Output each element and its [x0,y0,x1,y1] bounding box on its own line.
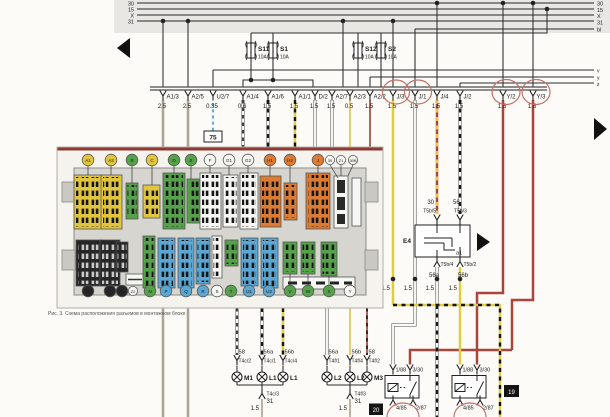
e4-pin-t5b2: T5b/2 [464,262,477,268]
connector-a2-3: A2/30.5 [345,91,367,111]
ground-gauge: 1.5 [251,406,260,412]
connector-y-2: Y/21.5 [498,91,516,111]
fuse-name: S11 [258,46,270,53]
connector-label: J/3 [397,95,406,101]
wire-gauge: 0.5 [345,104,354,110]
inset-label: G2 [245,158,252,163]
connector-label: J/4 [441,95,450,101]
inset-top-border [58,148,383,151]
wire-gauge: 1.5 [410,104,419,110]
fuse-rating: 10A [280,55,290,61]
lamp-icon [345,372,355,382]
inset-label: P [164,289,167,294]
inset-label: Z1 [339,158,344,163]
relay-1: 1/88 3/30 4/85 2/87 [385,365,427,417]
inset-label: W [306,289,311,294]
connector-label: A1/3 [167,95,180,101]
inset-label: H1 [267,158,273,163]
inset-label: E [189,158,192,163]
connector-label: J/1 [419,95,428,101]
ground-bus: 31 [267,399,274,405]
wire-gauge: 1.5 [388,104,397,110]
wire-gauge: 0.6 [238,104,247,110]
relay-terminal: 1/88 [396,368,407,374]
inset-connector-layout: A1 A2 B C D E F G1 G2 H1 H2 J 30 Z1 30B … [57,147,383,308]
inset-label: U2 [266,289,272,294]
ref-number: 20 [373,408,380,414]
wire-gauge: 0.35 [206,104,218,110]
fuse-icon [246,41,257,60]
e4-pin-t5b4: T5b/4 [441,262,454,268]
connector-j-3: J/31.5 [388,91,405,111]
terminal-75-label: 75 [209,135,217,142]
relay-terminal: 1/88 [463,368,474,374]
inset-blocks-top [74,173,361,229]
fuse-rating: 10A [258,55,268,61]
terminal-label: 56b [285,350,295,356]
e4-pin-t5b5: T5b/5 [423,209,436,215]
connector-label: A1/1 [299,95,312,101]
fuse-name: S12 [365,46,377,53]
lamp-name: L1 [269,375,277,382]
wire-y-3 [512,100,533,350]
inset-label: J [317,158,319,163]
fuse-name: S2 [388,46,396,53]
gauge: 1.5 [449,286,458,292]
connector-j-1: J/11.5 [410,91,427,111]
continuation-arrow-right-icon [594,118,607,140]
inset-label: A1 [85,158,91,163]
relay-terminal: 3/30 [480,368,491,374]
connector-label: A2/5 [192,95,205,101]
connector-label: A2/3 [354,95,367,101]
relay-terminal: 4/85 [463,406,474,412]
inset-label: Z2 [131,289,136,294]
ref-box-20: 20 [369,404,383,416]
inset-label: B [130,158,133,163]
inset-label: Y [348,289,351,294]
lamp-name: L2 [334,375,342,382]
connector-y-3: Y/31.5 [528,91,546,111]
inset-label: S [215,289,218,294]
wiring-diagram: 30 15 X 31 30 15 X 31 bl v y z S11 10A S… [0,0,610,417]
inset-label: L [109,289,112,294]
terminal-75: 75 [204,131,222,142]
terminal-label: 56b [352,350,362,356]
inset-label: M [120,289,124,294]
inset-label: X [327,289,330,294]
branch-label-z: z [597,82,600,88]
wire-gauge: 1.5 [263,104,272,110]
connector-label: J/2 [464,95,473,101]
inset-caption: Рис. 3. Схема расположения разъемов в мо… [48,311,186,317]
connector-label: Y/3 [537,95,547,101]
bus-label-bl-right: bl [597,28,601,34]
fuse-icon [353,41,364,60]
bus-label-31-left: 31 [128,20,134,26]
inset-label: H2 [287,158,293,163]
lamp-icon [322,372,332,382]
lamp-name: M1 [244,375,253,382]
relay-2: 1/88 3/30 4/85 2/87 [452,365,494,417]
e4-pin-t5b3: T5b/3 [454,209,467,215]
pin-label: T4f/2 [369,359,381,365]
pin-label: T4f/1 [329,359,341,365]
ground-bus: 31 [355,399,362,405]
wire-j-1 [393,100,415,365]
fuse-icon [376,41,387,60]
ground-pin: T4f/3 [355,392,367,398]
wire-gauge: 1.5 [432,104,441,110]
e4-contact: a1 [456,251,462,257]
inset-label: F [209,158,212,163]
fuse-s12: S12 10A [353,41,377,61]
wire-gauge: 2.5 [183,104,192,110]
terminal-label: 56a [329,350,339,356]
connector-a2-2: A2/21.5 [365,91,387,111]
wire-gauge: 1.5 [290,104,299,110]
connector-a1-3: A1/32.5 [158,91,180,111]
wiring-diagram-page: 30 15 X 31 30 15 X 31 bl v y z S11 10A S… [0,0,610,417]
lamp-name: M3 [374,375,383,382]
lamp-name: L1 [290,375,298,382]
terminal-label: 58 [369,350,375,356]
ref-box-19: 19 [504,385,519,397]
connector-a2-5: A2/52.5 [183,91,205,111]
lamp-group-2: 56a 56b 58 T4f/1 T4f/4 T4f/2 L2 L2 M3 T4… [322,350,383,413]
pin-label: T4c/4 [285,359,298,365]
inset-label: 30 [328,158,333,163]
pin-label: T4f/4 [352,359,364,365]
continuation-arrow-left-icon [117,38,130,58]
e4-out-56b: 56b [458,273,469,279]
fuse-s1: S1 10A [268,41,290,61]
connector-a1-1: A1/11.5 [290,91,312,111]
ground-pin: T4c/3 [267,392,280,398]
fuse-s11: S11 10A [246,41,270,61]
connector-j-2: J/21.5 [455,91,472,111]
lamp-name: L2 [357,375,365,382]
wire-gauge: 1.5 [365,104,374,110]
connector-a1-4: A1/40.6 [238,91,260,111]
lamp-icon [278,372,288,382]
pin-label: T4c/1 [264,359,277,365]
e4-name: E4 [403,238,411,245]
inset-label: T [230,289,233,294]
fuse-rating: 10A [388,55,398,61]
bar-connectors: A1/32.5 A2/52.5 U2/70.35 A1/40.6 A1/61.5… [158,91,546,111]
relay-terminal: 4/85 [396,406,407,412]
relay-terminal: 3/30 [413,368,424,374]
connector-label: U2/7 [217,95,230,101]
branch-label-v: v [597,69,600,75]
inset-label: 30B [349,158,356,163]
connector-label: A1/4 [247,95,260,101]
fuse-rating: 10A [365,55,375,61]
connector-label: A1/6 [272,95,285,101]
e4-terminal-30: 30 [427,200,434,206]
terminal-label: 56a [264,350,274,356]
fuse-icon [268,41,279,60]
wire-gauge: 1.5 [455,104,464,110]
connector-label: Y/2 [507,95,517,101]
bus-label-x-right: X [597,14,601,20]
connector-d-2: D/21.5 [310,91,329,111]
lamp-group-1: 58 56a 56b T4c/2 T4c/1 T4c/4 M1 L1 L1 T4… [232,350,298,413]
connector-u2-7: U2/70.35 [206,91,230,111]
ground-gauge: 1.5 [339,406,348,412]
connector-j-4: J/41.5 [432,91,449,111]
wire-gauge: 2.5 [158,104,167,110]
lamp-icon [257,372,267,382]
connector-a1-6: A1/61.5 [263,91,285,111]
pin-label: T4c/2 [239,359,252,365]
e4-terminal-56: 56 [453,200,460,206]
lamp-icon [232,372,242,382]
terminal-label: 58 [239,350,245,356]
inset-label: N [148,289,151,294]
branch-label-y: y [597,76,600,82]
gauge: 1.5 [426,286,435,292]
bus-label-31-right: 31 [597,21,603,27]
e4-out-56a: 56a [429,273,440,279]
inset-label: Q [184,289,188,294]
connector-label: D/2 [319,95,329,101]
ref-number: 19 [508,390,515,396]
terminal-bar [150,87,547,90]
inset-label: G1 [226,158,233,163]
fuse-name: S1 [280,46,288,53]
wire-gauge: 1.5 [327,104,336,110]
gauge: 1.5 [404,286,413,292]
e4-detail-arrow-icon [477,233,490,251]
bus-label-30-right: 30 [597,2,603,8]
wire-gauge: 1.5 [310,104,319,110]
connector-label: A2/7 [336,95,349,101]
inset-label: U1 [246,289,252,294]
inset-label: A2 [108,158,114,163]
fuse-s2: S2 10A [376,41,398,61]
